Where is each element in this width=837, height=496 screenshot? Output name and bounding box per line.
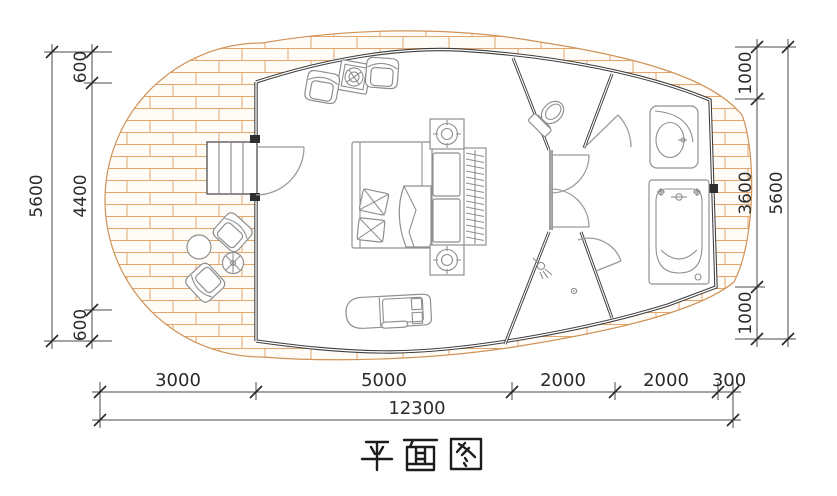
dim-bottom-seg-3: 2000 bbox=[643, 370, 689, 391]
entry-stairs bbox=[207, 142, 257, 194]
dim-bottom-seg-0: 3000 bbox=[155, 370, 201, 391]
dimension-right: 1000 3600 1000 5600 bbox=[735, 39, 796, 347]
indoor-armchair-right bbox=[365, 57, 399, 89]
wardrobe bbox=[464, 148, 486, 245]
double-bed bbox=[352, 142, 432, 248]
dim-right-seg-0: 1000 bbox=[736, 51, 756, 94]
dim-right-total: 5600 bbox=[767, 171, 787, 214]
dim-bottom-seg-2: 2000 bbox=[540, 370, 586, 391]
dim-left-seg-2: 600 bbox=[71, 309, 91, 341]
dim-right-seg-2: 1000 bbox=[736, 291, 756, 334]
dim-left-seg-0: 600 bbox=[71, 51, 91, 83]
indoor-armchair-left bbox=[304, 69, 341, 104]
dimension-bottom: 3000 5000 2000 2000 300 12300 bbox=[92, 370, 746, 428]
page-title: 平面图 bbox=[372, 435, 474, 475]
dim-left-seg-1: 4400 bbox=[71, 174, 91, 217]
floor-plan-drawing: 5600 600 4400 600 1000 3600 1000 5600 30… bbox=[0, 0, 837, 496]
dim-right-seg-1: 3600 bbox=[736, 171, 756, 214]
dim-bottom-seg-4: 300 bbox=[712, 370, 746, 391]
dim-bottom-total: 12300 bbox=[388, 398, 445, 419]
dim-left-total: 5600 bbox=[27, 174, 47, 217]
lounge-sofa bbox=[345, 294, 432, 330]
wash-basin bbox=[650, 106, 698, 168]
bathtub bbox=[649, 180, 709, 284]
floor-plan-page: 5600 600 4400 600 1000 3600 1000 5600 30… bbox=[0, 0, 837, 496]
dim-bottom-seg-1: 5000 bbox=[361, 370, 407, 391]
outdoor-side-table bbox=[223, 253, 244, 274]
dimension-left: 5600 600 4400 600 bbox=[27, 44, 112, 349]
outdoor-round-table bbox=[187, 235, 211, 259]
